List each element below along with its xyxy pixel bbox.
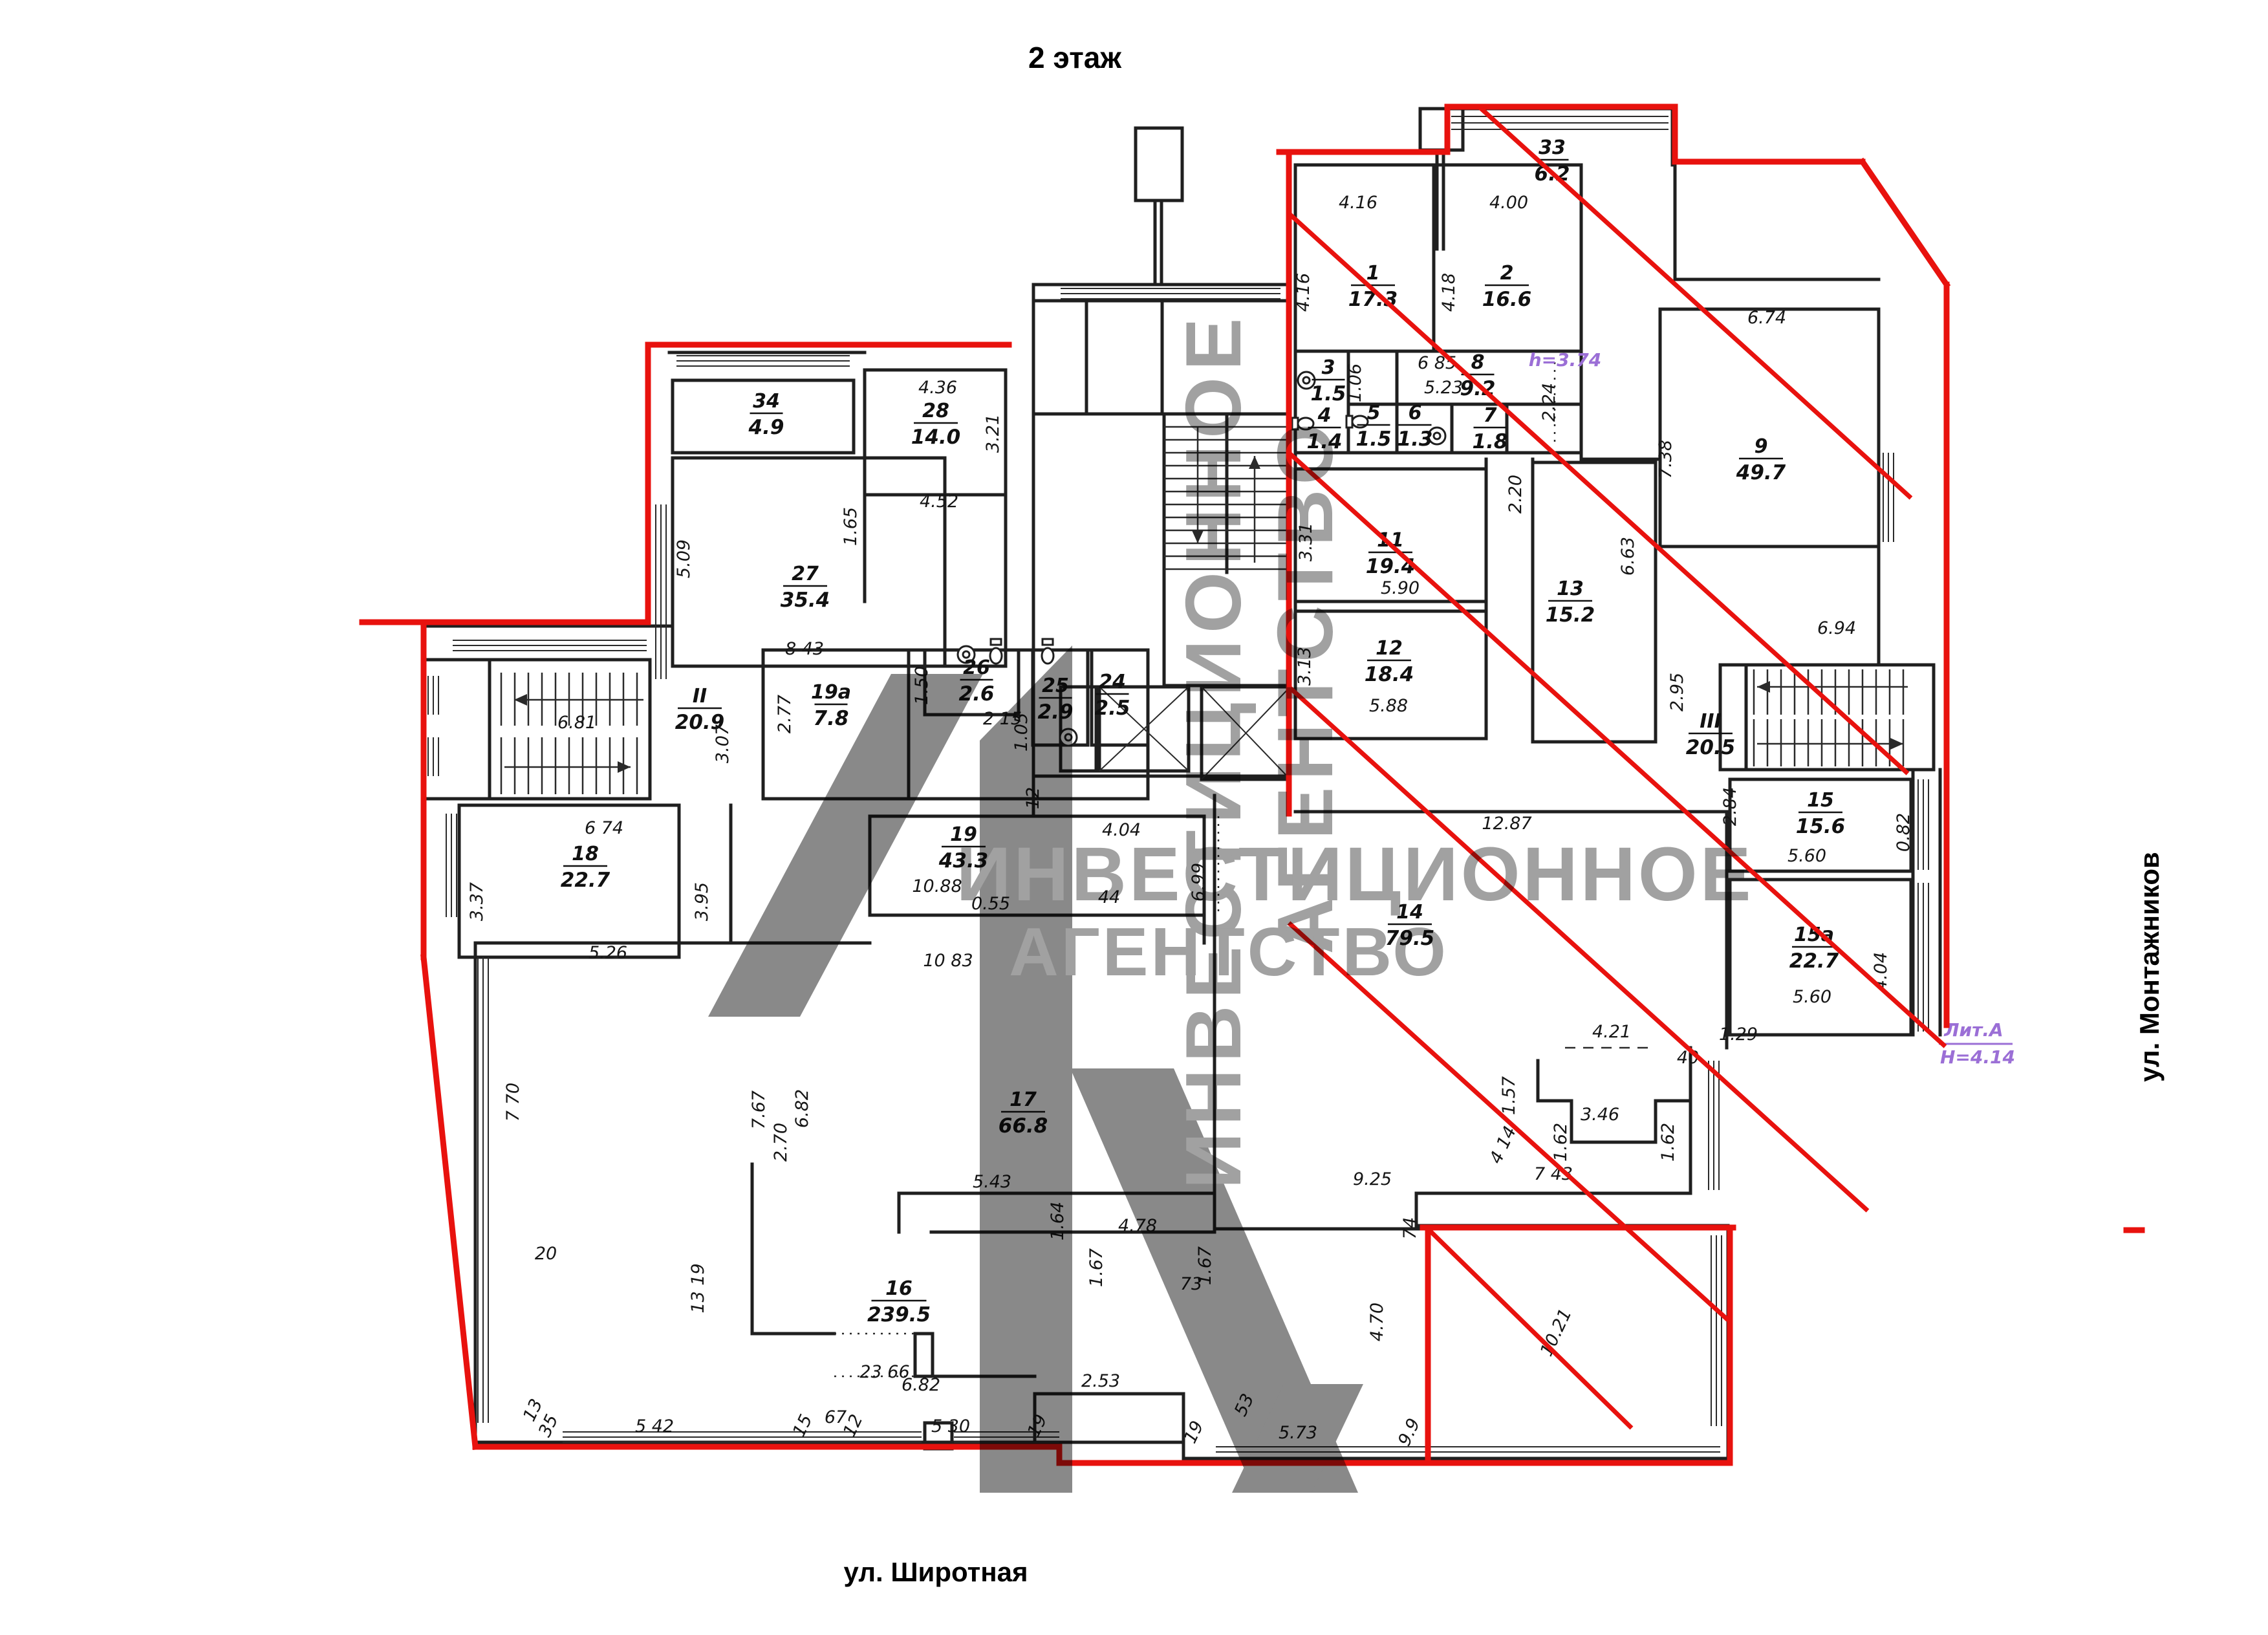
room-area: 2.5	[1095, 697, 1130, 720]
dim-label: 1.62	[1658, 1123, 1678, 1162]
room-area: 1.5	[1356, 428, 1392, 451]
room-number: 13	[1557, 578, 1584, 600]
floor-plan-scan: 117.3216.631.541.451.561.371.889.2949.71…	[0, 0, 2268, 1635]
dim-label: 7.38	[1656, 440, 1676, 479]
street-label-right: ул. Монтажников	[2134, 852, 2165, 1082]
dim-label: 5 42	[635, 1416, 674, 1436]
room-area: 1.5	[1311, 382, 1346, 406]
dim-label: 6 74	[585, 818, 623, 838]
dim-label: 15	[789, 1411, 817, 1440]
dim-label: 3.21	[983, 414, 1003, 453]
room-number: 19а	[811, 681, 851, 704]
stair-flight	[1754, 719, 1903, 766]
dim-label: 9.25	[1353, 1169, 1392, 1189]
room-number: 27	[792, 563, 819, 585]
room-number: 7	[1484, 404, 1497, 427]
dim-label: 1.67	[1086, 1248, 1107, 1287]
ceiling-height-note: h=3.74	[1529, 349, 1601, 371]
dim-label: 4.16	[1339, 193, 1377, 213]
dim-label: 7 70	[503, 1083, 523, 1121]
dim-label: 1.06	[1345, 363, 1365, 402]
room-area: 22.7	[561, 869, 610, 892]
room-area: 1.8	[1473, 430, 1508, 453]
room-area: 7.8	[814, 707, 849, 730]
stair-flight	[1754, 669, 1903, 715]
room-number: 9	[1755, 435, 1768, 458]
dim-label: 5.09	[674, 539, 694, 578]
room-area: 18.4	[1365, 663, 1414, 686]
dim-label: 10.88	[912, 876, 962, 896]
room-number: 8	[1471, 351, 1485, 374]
dim-label: 74	[1400, 1217, 1420, 1239]
room-area: 20.5	[1686, 736, 1736, 759]
room-area: 35.4	[781, 589, 830, 612]
dim-label: 3.07	[713, 724, 733, 763]
dim-label: 2.53	[1081, 1371, 1120, 1391]
dim-label: 0.82	[1894, 813, 1914, 852]
dim-label: 6.63	[1618, 537, 1638, 576]
dim-label: 3.46	[1581, 1105, 1619, 1125]
dim-label: 6.94	[1817, 618, 1856, 638]
dim-label: 13 19	[688, 1263, 708, 1313]
dim-label: 1.29	[1719, 1024, 1758, 1045]
room-number: 15	[1807, 789, 1834, 812]
dim-label: 23 66	[859, 1362, 909, 1382]
dim-label: 2.24	[1539, 383, 1559, 422]
dim-label: 4.00	[1489, 193, 1528, 213]
page-title: 2 этаж	[1028, 41, 1121, 74]
dim-label: 4.70	[1367, 1303, 1387, 1341]
surveyor-notes: h=3.74 Лит.А Н=4.14	[1529, 349, 2015, 1068]
dim-label: 6.74	[1747, 308, 1786, 328]
stair-flight	[501, 737, 637, 794]
dim-label: 2.84	[1720, 787, 1740, 826]
room-area: 22.7	[1789, 949, 1839, 973]
dim-label: 4.04	[1871, 952, 1891, 991]
room-area: 15.2	[1546, 603, 1595, 627]
dim-label: 3.95	[692, 882, 712, 921]
toilet-icon	[1042, 639, 1053, 664]
watermark-line-1: ИНВЕСТИЦИОННОЕ	[956, 832, 1754, 917]
dim-label: 5 30	[931, 1416, 970, 1436]
watermark-vertical-1: ИНВЕСТИЦИОННОЕ	[1169, 312, 1257, 1189]
dim-label: 5.60	[1793, 987, 1831, 1007]
room-number: II	[693, 685, 707, 708]
room-area: 16.6	[1482, 288, 1532, 311]
dim-label: 2.95	[1667, 673, 1687, 711]
room-area: 4.9	[748, 416, 784, 439]
dim-label: 3.37	[467, 882, 487, 921]
dim-label: 4.16	[1293, 273, 1313, 312]
room-number: 2	[1500, 262, 1514, 285]
room-number: 16	[885, 1277, 913, 1300]
toilet-icon	[1346, 416, 1368, 428]
room-number: 3	[1322, 356, 1335, 379]
dim-label: 9.9	[1394, 1415, 1424, 1449]
dim-label: 5.26	[589, 943, 627, 963]
room-area: 15.6	[1796, 815, 1846, 838]
watermark-line-2: АГЕНТСТВО	[1009, 914, 1449, 990]
dim-label: 6 85	[1418, 353, 1456, 373]
dim-label: 5.88	[1369, 696, 1408, 716]
room-number: III	[1700, 710, 1722, 733]
dim-label: 8 43	[785, 639, 824, 659]
dim-label: 2.70	[771, 1123, 791, 1162]
room-number: 33	[1539, 136, 1566, 159]
dim-label: 1.57	[1499, 1076, 1519, 1115]
liter-note: Лит.А	[1943, 1019, 2003, 1041]
dim-label: 2.20	[1506, 475, 1526, 514]
room-number: 18	[572, 843, 599, 865]
street-label-bottom: ул. Широтная	[844, 1557, 1028, 1587]
dim-label: 4.18	[1439, 273, 1459, 312]
room-area: 239.5	[867, 1303, 931, 1326]
dim-label: 4.36	[918, 378, 957, 398]
room-number: 28	[922, 400, 949, 422]
dim-label: 7.67	[749, 1090, 769, 1129]
dim-label: 20	[535, 1244, 557, 1264]
room-number: 1	[1366, 262, 1380, 285]
dim-label: 4.52	[920, 492, 958, 512]
room-area: 14.0	[911, 426, 961, 449]
room-area: 49.7	[1736, 461, 1786, 484]
floor-plan-drawing: 117.3216.631.541.451.561.371.889.2949.71…	[0, 0, 2268, 1635]
dim-label: 4.21	[1592, 1022, 1631, 1042]
dim-label: 5.60	[1787, 846, 1826, 866]
toilet-icon	[990, 639, 1002, 664]
dim-label: 1.62	[1551, 1123, 1571, 1162]
room-number: 34	[753, 390, 780, 413]
dim-label: 6.81	[557, 713, 596, 733]
dim-label: 5.90	[1381, 578, 1420, 598]
dim-label: 5.23	[1424, 378, 1463, 398]
dim-label: 12.87	[1482, 814, 1531, 834]
dim-label: 6.82	[792, 1089, 812, 1128]
room-number: 24	[1099, 671, 1126, 693]
dim-label: 2.77	[775, 695, 795, 733]
room-number: 12	[1376, 637, 1403, 660]
room-number: 11	[1377, 529, 1404, 552]
room-area: 1.3	[1398, 428, 1433, 451]
room-number: 5	[1367, 402, 1381, 424]
room-number: 6	[1409, 402, 1422, 424]
building-height-note: Н=4.14	[1940, 1046, 2015, 1068]
dim-label: 10 83	[923, 951, 973, 971]
dim-label: 1.65	[841, 507, 861, 546]
